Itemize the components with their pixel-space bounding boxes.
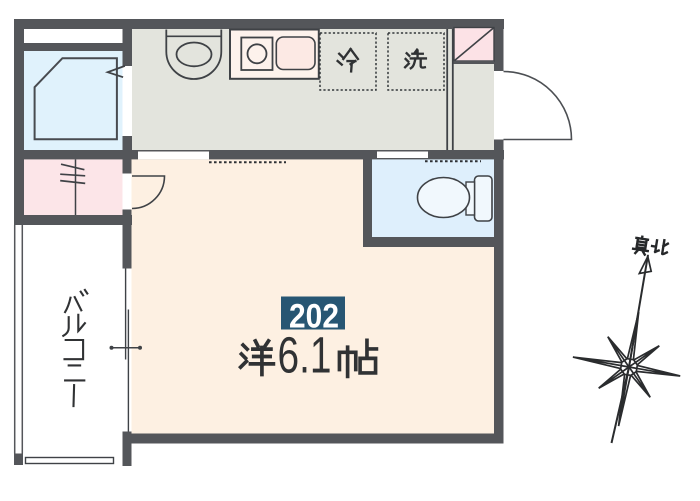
svg-text:6.1: 6.1 [278,326,332,383]
